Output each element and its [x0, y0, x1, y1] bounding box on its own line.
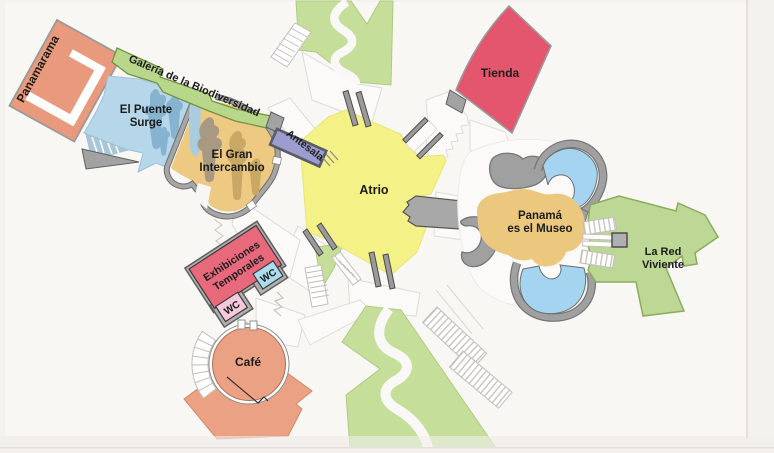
svg-text:Panamá: Panamá: [518, 210, 563, 222]
svg-text:Atrio: Atrio: [359, 183, 389, 197]
svg-text:Viviente: Viviente: [642, 259, 684, 271]
svg-text:Surge: Surge: [130, 117, 163, 129]
svg-text:Tienda: Tienda: [481, 66, 520, 80]
svg-text:El Gran: El Gran: [212, 149, 253, 161]
svg-text:La Red: La Red: [645, 246, 682, 258]
svg-text:El Puente: El Puente: [120, 104, 172, 116]
svg-text:Café: Café: [235, 355, 261, 369]
svg-text:es el Museo: es el Museo: [507, 223, 572, 235]
svg-text:Intercambio: Intercambio: [199, 162, 264, 174]
